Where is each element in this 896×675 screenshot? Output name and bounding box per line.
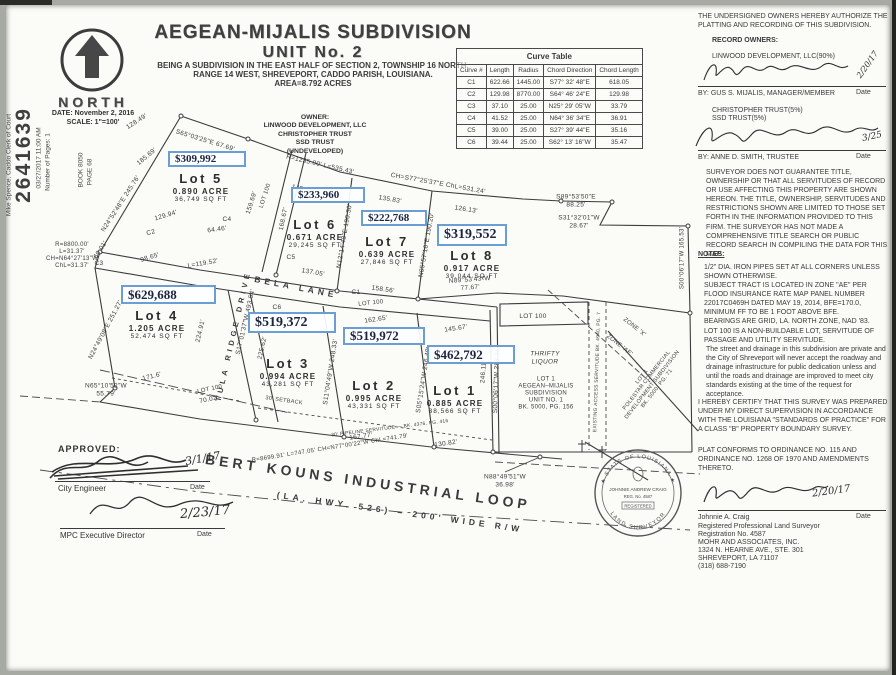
surveyor-signature: [700, 478, 830, 510]
certification-statement: I HEREBY CERTIFY THAT THIS SURVEY WAS PR…: [698, 398, 888, 434]
ordinance-statement: PLAT CONFORMS TO ORDINANCE NO. 115 AND O…: [698, 446, 888, 473]
seal-title-text: LAND SURVEYOR: [609, 511, 668, 531]
lot-label-lot-1: Lot 10.885 ACRE38,566 SQ FT: [427, 383, 484, 415]
lot-name: Lot 2: [346, 378, 403, 393]
lot-square-feet: 38,566 SQ FT: [427, 408, 484, 415]
lot-label-lot-6: Lot 60.671 ACRE29,245 SQ FT: [287, 217, 344, 249]
signature-line: [698, 510, 886, 511]
lot-name: Lot 5: [173, 171, 230, 186]
lot-label-lot-8: Lot 80.917 ACRE39,044 SQ FT: [444, 248, 501, 280]
note-item: SUBJECT TRACT IS LOCATED IN ZONE "AE" PE…: [704, 281, 888, 317]
svg-text:LAND SURVEYOR: LAND SURVEYOR: [609, 511, 668, 531]
lot-square-feet: 27,846 SQ FT: [359, 259, 416, 266]
seal-name: JOHNNIE ANDREW CRAIG: [609, 487, 667, 492]
date-label: Date: [197, 531, 212, 538]
lot-acreage: 0.994 ACRE: [260, 372, 317, 381]
lot-name: Lot 7: [359, 234, 416, 249]
lot-square-feet: 43,281 SQ FT: [260, 381, 317, 388]
lot-label-lot-3: Lot 30.994 ACRE43,281 SQ FT: [260, 356, 317, 388]
lot-name: Lot 4: [129, 308, 186, 323]
owner2-signature: [694, 120, 880, 152]
lot-acreage: 0.639 ACRE: [359, 250, 416, 259]
notes-heading: NOTES:: [698, 250, 888, 259]
mpc-director-label: MPC Executive Director: [60, 531, 145, 540]
lot-label-lot-4: Lot 41.205 ACRE52,474 SQ FT: [129, 308, 186, 340]
note-item: The street and drainage in this subdivis…: [706, 345, 889, 400]
signature-line: [60, 528, 225, 529]
date-label: Date: [190, 484, 205, 491]
lot-name: Lot 6: [287, 217, 344, 232]
lot-square-feet: 39,044 SQ FT: [444, 273, 501, 280]
lot-label-lot-2: Lot 20.995 ACRE43,331 SQ FT: [346, 378, 403, 410]
svg-text:★ STATE OF LOUISIANA ★: ★ STATE OF LOUISIANA ★: [599, 454, 676, 485]
price-tag-lot-5[interactable]: $309,992: [168, 151, 246, 167]
price-tag-lot-1[interactable]: $462,792: [427, 345, 515, 364]
note-item: 1/2" DIA. IRON PIPES SET AT ALL CORNERS …: [704, 263, 888, 281]
price-tag-lot-3[interactable]: $519,372: [248, 312, 336, 333]
lot-label-lot-7: Lot 70.639 ACRE27,846 SQ FT: [359, 234, 416, 266]
lot-acreage: 1.205 ACRE: [129, 324, 186, 333]
lot-acreage: 0.995 ACRE: [346, 394, 403, 403]
lot-square-feet: 29,245 SQ FT: [287, 242, 344, 249]
lot-square-feet: 36,749 SQ FT: [173, 196, 230, 203]
signature-line: [698, 86, 886, 87]
lot-square-feet: 43,331 SQ FT: [346, 403, 403, 410]
signature-line: [698, 150, 886, 151]
price-tag-lot-6[interactable]: $233,960: [291, 187, 365, 203]
lot-acreage: 0.671 ACRE: [287, 233, 344, 242]
surveyor-phone: (318) 688-7190: [698, 562, 888, 571]
surveyor-seal: ★ STATE OF LOUISIANA ★ LAND SURVEYOR JOH…: [592, 447, 684, 539]
price-tag-lot-8[interactable]: $319,552: [437, 224, 507, 246]
lot-square-feet: 52,474 SQ FT: [129, 333, 186, 340]
authorization-statement: THE UNDERSIGNED OWNERS HEREBY AUTHORIZE …: [698, 12, 888, 30]
date-label: Date: [856, 513, 871, 520]
lot-acreage: 0.885 ACRE: [427, 399, 484, 408]
note-item: BEARINGS ARE GRID, LA. NORTH ZONE, NAD '…: [704, 317, 888, 326]
note-item: LOT 100 IS A NON-BUILDABLE LOT, SERVITUD…: [704, 327, 888, 345]
lot-name: Lot 8: [444, 248, 501, 263]
price-tag-lot-4[interactable]: $629,688: [121, 285, 216, 304]
lot-acreage: 0.917 ACRE: [444, 264, 501, 273]
signature-line: [55, 481, 210, 482]
seal-registered: REGISTERED: [624, 504, 651, 509]
lot-acreage: 0.890 ACRE: [173, 187, 230, 196]
scanned-plat-page: NORTH DATE: November 2, 2016 SCALE: 1"=1…: [0, 0, 896, 675]
lot-name: Lot 3: [260, 356, 317, 371]
date-label: Date: [856, 89, 871, 96]
owner1-signature: [702, 58, 852, 86]
lot-label-lot-5: Lot 50.890 ACRE36,749 SQ FT: [173, 171, 230, 203]
seal-state-text: ★ STATE OF LOUISIANA ★: [599, 454, 676, 485]
record-owners-heading: RECORD OWNERS:: [712, 36, 896, 45]
date-label: Date: [856, 153, 871, 160]
lot-name: Lot 1: [427, 383, 484, 398]
price-tag-lot-7[interactable]: $222,768: [361, 210, 427, 226]
price-tag-lot-2[interactable]: $519,972: [343, 327, 425, 345]
seal-reg: REG. No. 4587: [624, 494, 653, 499]
title-disclaimer: SURVEYOR DOES NOT GUARANTEE TITLE, OWNER…: [706, 168, 888, 259]
